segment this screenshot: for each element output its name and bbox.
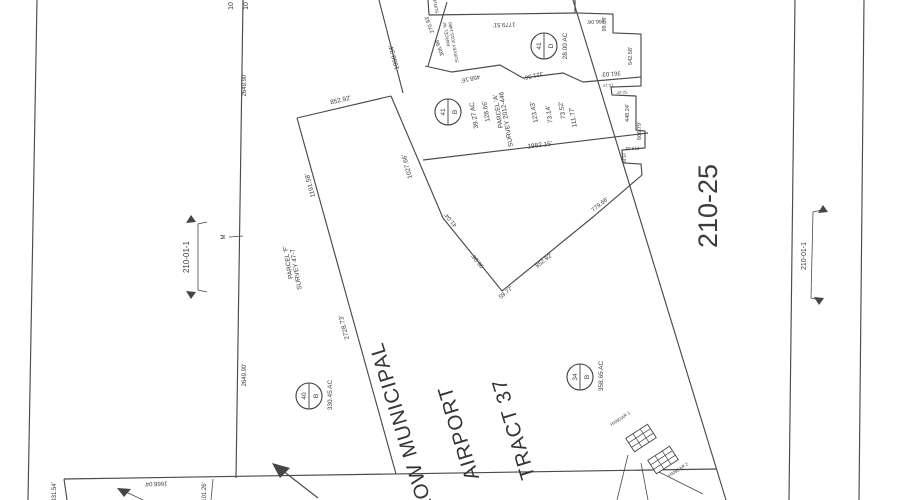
corner-tick: [229, 236, 243, 237]
dimension-label: 270.93': [424, 15, 436, 34]
parcel-number: 41: [536, 42, 543, 50]
arrow-down-icon: [814, 297, 824, 305]
dimension-label: 73.14': [545, 105, 555, 123]
dimension-label: 101.26': [202, 482, 208, 500]
dimension-label: 10: [243, 2, 250, 10]
dimension-label: 96.06': [471, 252, 486, 268]
taxiway-boundary: [443, 175, 642, 291]
dimension-label: 123.43': [529, 101, 540, 123]
dimension-label: M: [221, 235, 227, 240]
road-line-east-2: [859, 0, 864, 500]
title-line-1: LOW MUNICIPAL: [365, 340, 438, 500]
dimension-label: 1779.51': [493, 21, 516, 28]
dimension-label: 219.53': [625, 146, 640, 152]
parcel-number: 34: [572, 373, 579, 381]
dimension-label: 2728.73': [338, 315, 351, 341]
south-tick: [211, 479, 213, 500]
dimension-label: 41.04': [444, 211, 459, 227]
dimension-label: 330.45 AC: [327, 380, 334, 411]
long-diagonal-boundary: [573, 0, 726, 500]
parcel-letter: B: [584, 375, 591, 379]
runway-strip-west: [297, 118, 396, 474]
dimension-label: 331.54': [52, 482, 58, 500]
dimension-label: 1098.34': [388, 45, 401, 71]
parcel-letter: B: [313, 394, 320, 398]
parcel-circle-34b: 34 B: [567, 364, 593, 390]
parcel-letter: B: [452, 110, 459, 114]
south-strip-top: [64, 469, 716, 479]
dimension-label: 210-25: [693, 164, 723, 248]
dimension-label: 458.16': [460, 73, 480, 83]
parcel-a-north-boundary: [425, 65, 583, 82]
parcel-number: 41: [440, 108, 447, 116]
ref-bracket-west: [198, 222, 207, 292]
dimension-label: 361.03': [601, 69, 621, 76]
small-arrow-icon: [117, 488, 131, 497]
arrow-up-icon: [186, 215, 196, 223]
dimension-label: 84.16': [622, 152, 627, 163]
dimension-label: 10: [228, 2, 235, 10]
dimension-label: 111.77': [568, 107, 578, 128]
road-line-west: [236, 0, 243, 478]
dimension-label: HANGAR 1: [609, 410, 631, 427]
dimension-label: 1668.04': [145, 480, 168, 487]
parcel-circle-41d: 41 D: [531, 33, 557, 59]
dimension-label: 99.09': [602, 17, 608, 32]
dimension-label: 52.19': [616, 90, 627, 95]
arrow-up-icon: [818, 205, 828, 213]
dimension-label: SURVEY: [431, 0, 439, 14]
dimension-label: 1982.15': [527, 141, 552, 151]
parcel-number: 40: [301, 392, 308, 400]
ref-bracket-east: [811, 210, 822, 300]
dimension-label: 1191.58': [304, 173, 317, 198]
arrow-down-icon: [186, 291, 196, 299]
parcel-letter: D: [548, 43, 555, 48]
dimension-label: 128.66': [481, 100, 492, 122]
south-strip-west: [64, 479, 67, 500]
hangar-1-building: [626, 424, 657, 452]
parcel-w-south-line: [429, 13, 575, 15]
road-line-east-1: [789, 0, 795, 500]
dimension-label: 358.65 AC: [598, 361, 605, 392]
dimension-label: 448.24': [625, 104, 631, 122]
dimension-label: 666.79': [637, 122, 643, 140]
dimension-label: 1027.66': [401, 154, 414, 180]
hangar-leader-3: [655, 470, 703, 494]
map-page: 41 D 41 B 40 B 34 B LOW MUNICIPAL AIRPOR…: [0, 0, 900, 500]
dimension-label: 210-01-1: [801, 242, 808, 270]
title-line-3: TRACT 37: [488, 376, 541, 483]
parcel-w-edge: [428, 0, 429, 15]
west-boundary-line: [28, 0, 37, 500]
east-stair-boundary: [575, 0, 641, 82]
dimension-label: 28.00 AC: [562, 32, 569, 59]
dimension-label: 2649.90': [242, 74, 248, 97]
hangar-leader-2: [641, 463, 648, 500]
dimension-label: 13.13': [602, 83, 613, 88]
dimension-label: 73.52': [558, 101, 568, 119]
hangar-leader-1: [617, 455, 628, 500]
dimension-labels: 2649.90'2649.90'1010M210-01-1210-01-1210…: [52, 0, 808, 500]
map-svg: 41 D 41 B 40 B 34 B LOW MUNICIPAL AIRPOR…: [0, 0, 900, 500]
tract-title: LOW MUNICIPAL AIRPORT TRACT 37: [365, 340, 540, 500]
dimension-label: 2649.90': [242, 364, 248, 387]
dimension-label: 852.92': [330, 95, 352, 107]
title-line-2: AIRPORT: [433, 383, 484, 483]
dimension-label: 321.36': [523, 70, 543, 80]
parcel-circle-41b: 41 B: [435, 99, 461, 125]
dimension-label: 542.58': [628, 47, 634, 65]
parcel-circle-40b: 40 B: [296, 383, 322, 409]
dimension-label: 210-01-1: [182, 240, 191, 273]
dimension-label: 39.27 AC: [469, 101, 481, 129]
